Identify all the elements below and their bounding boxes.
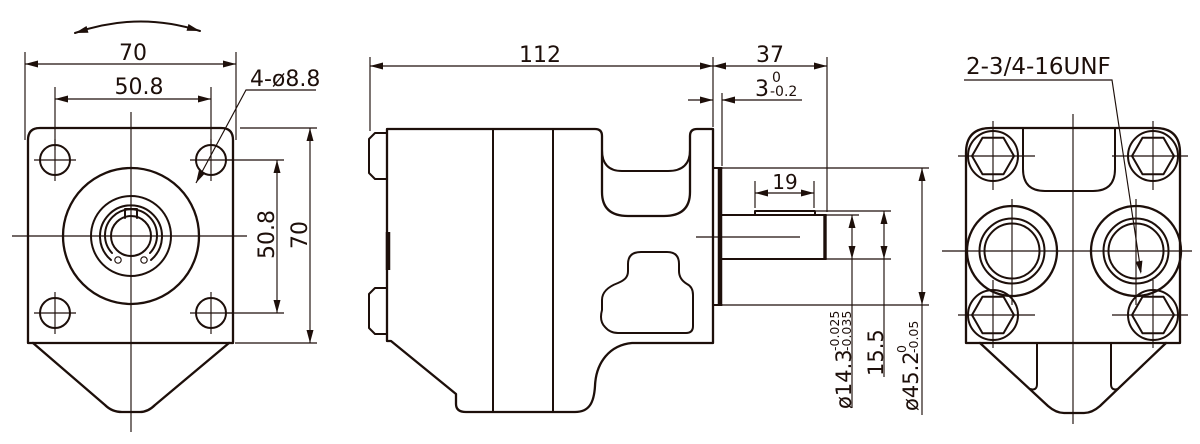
arrowhead bbox=[881, 211, 888, 224]
dim-bolt-spacing-v-label: 50.8 bbox=[255, 210, 280, 259]
arrowhead bbox=[274, 300, 281, 313]
arrowhead bbox=[801, 190, 814, 197]
arrowhead bbox=[74, 26, 88, 36]
arrowhead bbox=[849, 215, 856, 228]
rotation-arrow-arc bbox=[75, 21, 200, 33]
bolt-head-side bbox=[369, 288, 387, 334]
bolt-head-side bbox=[369, 133, 387, 179]
rear-view bbox=[942, 80, 1192, 424]
dim-height-label: 70 bbox=[288, 221, 313, 249]
arrowhead bbox=[919, 168, 926, 181]
dim-pilot-dia-label: ø45.2 bbox=[899, 351, 923, 411]
dim-over-key-height-label: 15.5 bbox=[864, 329, 888, 376]
leader-line bbox=[196, 90, 316, 183]
linework bbox=[12, 21, 1192, 432]
dim-pilot-depth-label: 3 bbox=[755, 77, 769, 102]
arrowhead bbox=[849, 246, 856, 259]
port-thread-callout: 2-3/4-16UNF bbox=[966, 54, 1111, 80]
dim-pilot-depth-tol-lower: -0.2 bbox=[770, 84, 797, 100]
arrowhead bbox=[25, 61, 38, 68]
drawing-sheet: 70 50.8 4-ø8.8 50.8 70 112 37 3 0 -0.2 1… bbox=[0, 0, 1200, 444]
arrowhead bbox=[700, 97, 713, 104]
arrowhead bbox=[722, 97, 735, 104]
arrowhead bbox=[370, 63, 383, 70]
rear-top-notch bbox=[1023, 128, 1115, 191]
side-port-notch-inner bbox=[602, 150, 690, 171]
rear-centerlines bbox=[942, 114, 1192, 424]
dim-shaft-dia-tol-lower: -0.035 bbox=[839, 311, 854, 351]
arrowhead bbox=[755, 190, 768, 197]
dim-width-label: 70 bbox=[119, 41, 147, 66]
dim-bolt-holes-label: 4-ø8.8 bbox=[250, 67, 320, 92]
arrowhead bbox=[1136, 261, 1145, 275]
pump-drawing-svg: 70 50.8 4-ø8.8 50.8 70 112 37 3 0 -0.2 1… bbox=[0, 0, 1200, 444]
dim-shaft-dia-label: ø14.3 bbox=[832, 349, 856, 409]
dim-shaft-extension-label: 37 bbox=[756, 43, 784, 68]
arrowhead bbox=[919, 292, 926, 305]
arrowhead bbox=[700, 63, 713, 70]
rear-v-slot bbox=[1030, 343, 1037, 389]
dim-bolt-spacing-h-label: 50.8 bbox=[115, 75, 164, 100]
arrowhead bbox=[307, 128, 314, 141]
arrowhead bbox=[274, 160, 281, 173]
arrowhead bbox=[198, 96, 211, 103]
dim-key-length-label: 19 bbox=[772, 170, 797, 194]
arrowhead bbox=[713, 63, 726, 70]
arrowhead bbox=[814, 63, 827, 70]
circlip-ear-hole bbox=[115, 257, 121, 263]
arrowhead bbox=[187, 24, 201, 34]
rear-v-slot bbox=[1111, 343, 1118, 389]
circlip-ear-hole bbox=[141, 257, 147, 263]
arrowhead bbox=[223, 61, 236, 68]
dimension-texts: 70 50.8 4-ø8.8 50.8 70 112 37 3 0 -0.2 1… bbox=[115, 41, 1111, 411]
dim-pilot-dia-tol-lower: -0.05 bbox=[906, 321, 921, 353]
cover-parting-lines bbox=[493, 129, 553, 412]
dim-body-length-label: 112 bbox=[519, 43, 561, 68]
arrowhead bbox=[307, 330, 314, 343]
arrowhead bbox=[55, 96, 68, 103]
side-port-boss-contour bbox=[601, 252, 693, 333]
arrowhead bbox=[881, 246, 888, 259]
